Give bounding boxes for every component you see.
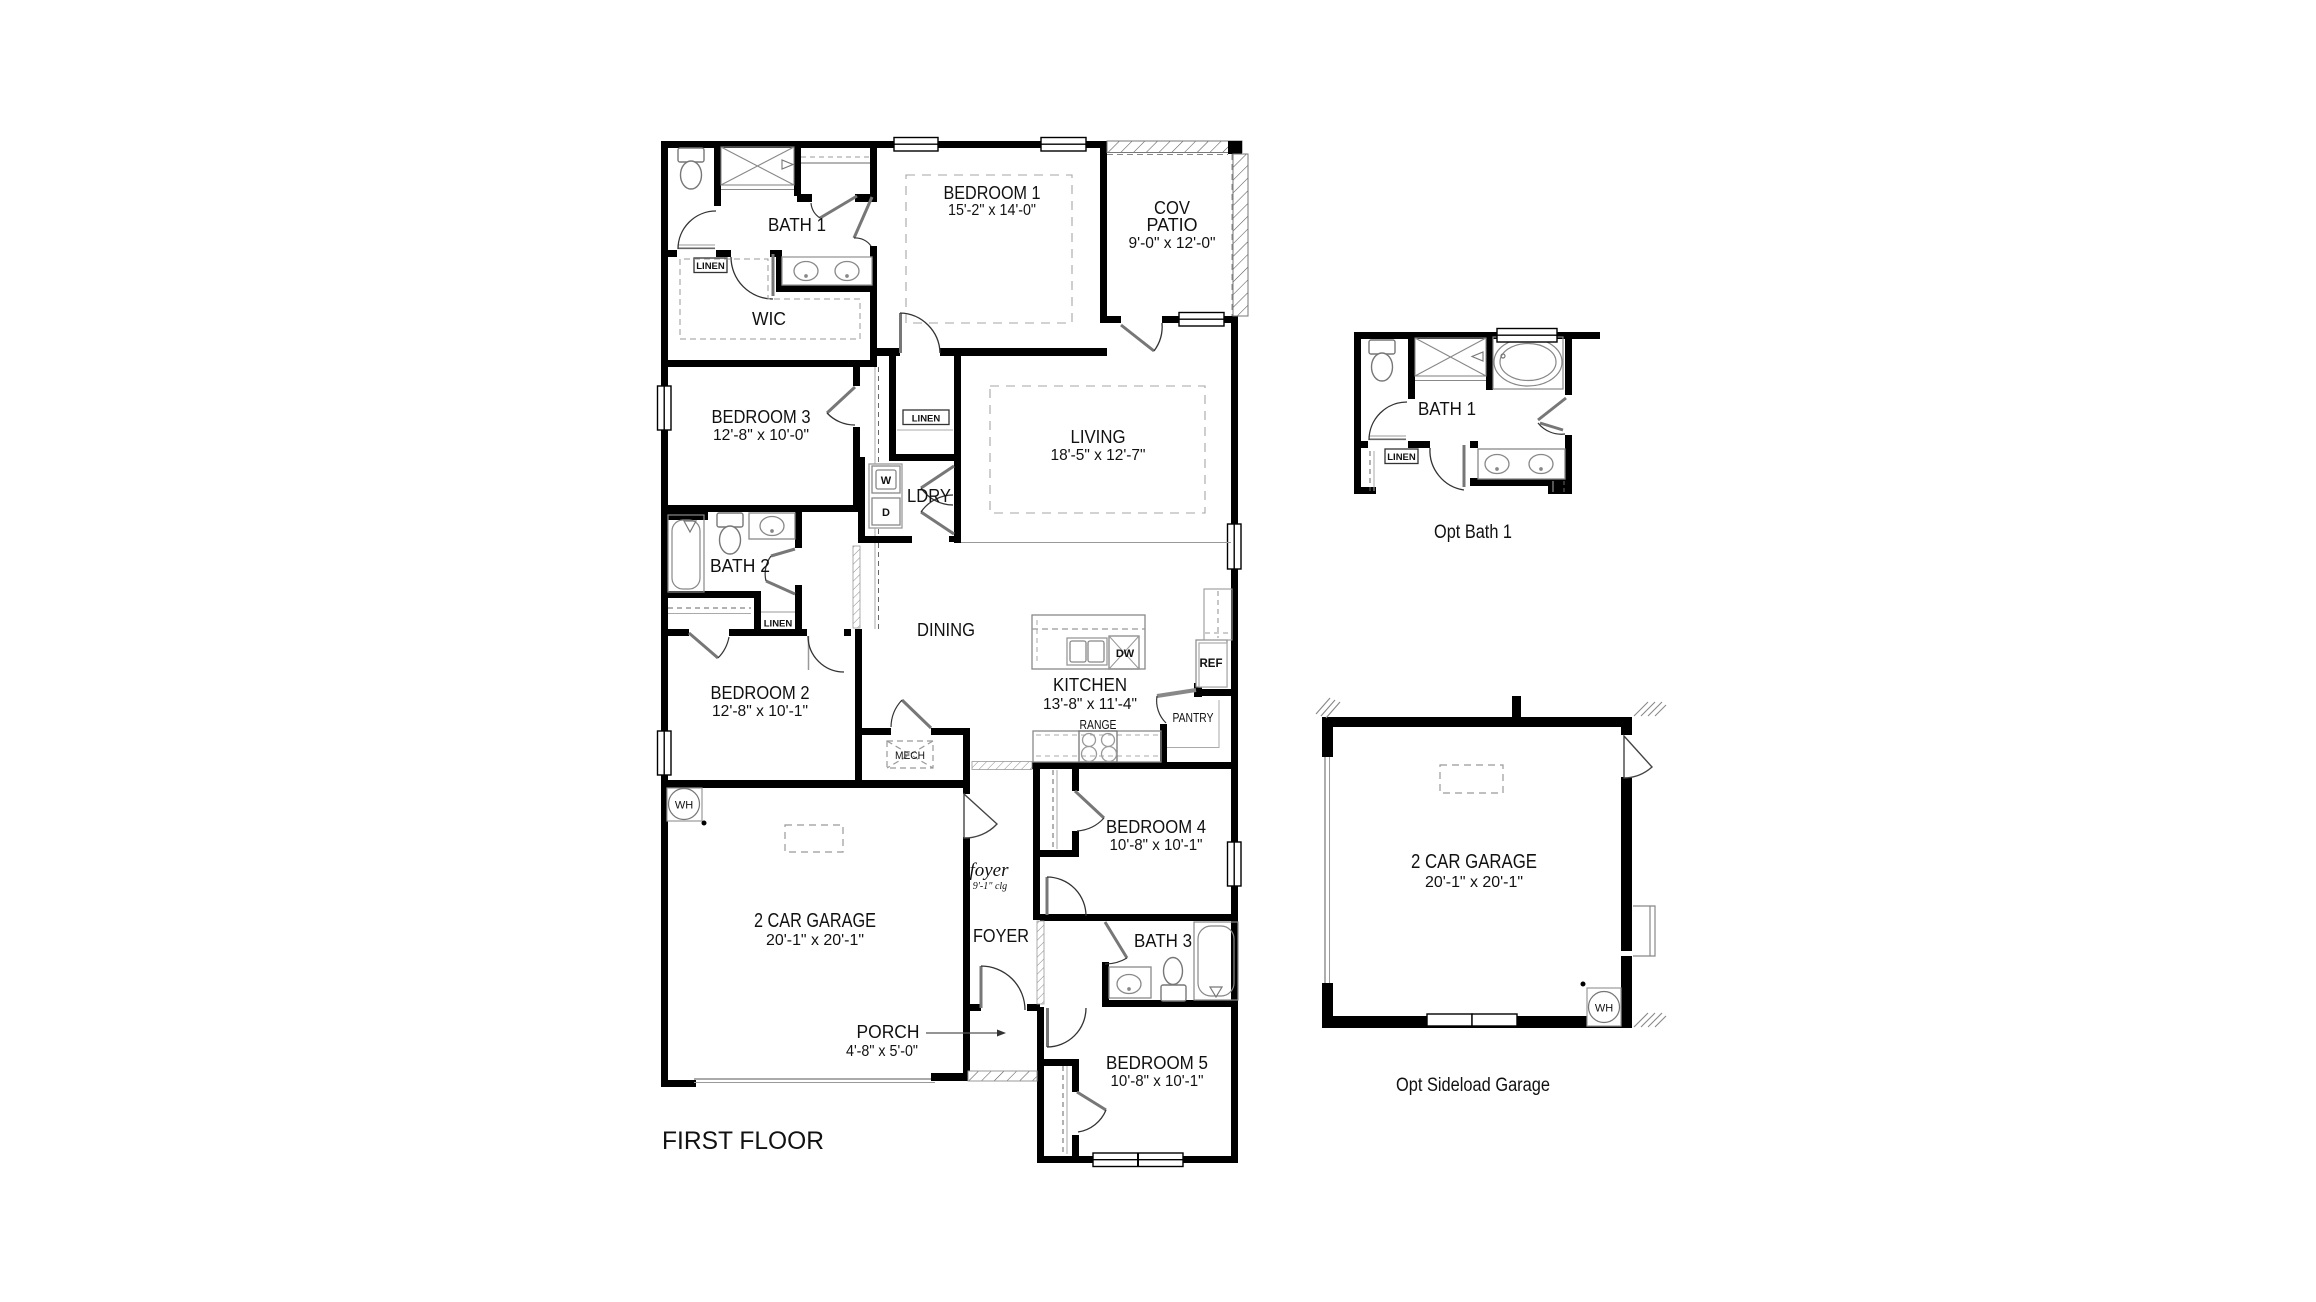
svg-text:BATH 2: BATH 2	[710, 555, 770, 576]
svg-text:10'-8" x 10'-1": 10'-8" x 10'-1"	[1111, 1073, 1204, 1090]
svg-text:FIRST FLOOR: FIRST FLOOR	[662, 1127, 824, 1155]
svg-text:9'-1" clg: 9'-1" clg	[973, 881, 1007, 892]
svg-text:LDRY: LDRY	[907, 485, 951, 506]
svg-text:LINEN: LINEN	[912, 414, 941, 425]
svg-text:RANGE: RANGE	[1080, 718, 1117, 732]
svg-text:BEDROOM 4: BEDROOM 4	[1106, 816, 1206, 837]
svg-text:2 CAR GARAGE: 2 CAR GARAGE	[754, 910, 876, 932]
svg-text:Opt Bath 1: Opt Bath 1	[1434, 522, 1512, 543]
svg-text:WH: WH	[1595, 1003, 1613, 1015]
svg-text:10'-8" x 10'-1": 10'-8" x 10'-1"	[1110, 837, 1203, 854]
svg-text:9'-0" x 12'-0": 9'-0" x 12'-0"	[1129, 235, 1216, 252]
svg-text:WIC: WIC	[752, 308, 786, 329]
svg-text:Opt Sideload Garage: Opt Sideload Garage	[1396, 1075, 1550, 1096]
svg-text:BATH 1: BATH 1	[1418, 398, 1476, 419]
svg-text:BEDROOM 1: BEDROOM 1	[944, 182, 1041, 203]
svg-text:BEDROOM 3: BEDROOM 3	[712, 406, 811, 427]
svg-text:LINEN: LINEN	[696, 261, 725, 272]
svg-text:PATIO: PATIO	[1147, 214, 1198, 235]
svg-text:BEDROOM 2: BEDROOM 2	[711, 682, 810, 703]
svg-text:12'-8" x 10'-1": 12'-8" x 10'-1"	[712, 703, 808, 720]
svg-text:MECH: MECH	[895, 750, 925, 762]
svg-text:DINING: DINING	[917, 619, 975, 640]
svg-text:PANTRY: PANTRY	[1173, 711, 1215, 725]
svg-text:PORCH: PORCH	[857, 1021, 920, 1042]
svg-text:4'-8" x 5'-0": 4'-8" x 5'-0"	[846, 1043, 918, 1060]
svg-text:W: W	[881, 475, 892, 487]
svg-text:foyer: foyer	[969, 860, 1009, 881]
svg-text:12'-8" x 10'-0": 12'-8" x 10'-0"	[713, 427, 809, 444]
svg-text:13'-8" x 11'-4": 13'-8" x 11'-4"	[1043, 696, 1137, 713]
svg-text:18'-5" x 12'-7": 18'-5" x 12'-7"	[1051, 447, 1146, 464]
svg-text:KITCHEN: KITCHEN	[1053, 674, 1127, 695]
svg-text:REF: REF	[1200, 658, 1223, 670]
svg-text:LINEN: LINEN	[764, 619, 793, 630]
svg-text:LINEN: LINEN	[1387, 452, 1416, 463]
svg-text:20'-1" x 20'-1": 20'-1" x 20'-1"	[1425, 874, 1523, 891]
svg-text:15'-2" x 14'-0": 15'-2" x 14'-0"	[948, 202, 1036, 219]
svg-text:20'-1" x 20'-1": 20'-1" x 20'-1"	[766, 932, 864, 949]
svg-text:LIVING: LIVING	[1071, 426, 1126, 447]
svg-text:BATH 1: BATH 1	[768, 214, 826, 235]
svg-text:D: D	[882, 507, 890, 519]
svg-text:2 CAR GARAGE: 2 CAR GARAGE	[1411, 851, 1537, 873]
svg-text:DW: DW	[1116, 648, 1135, 660]
svg-text:BATH 3: BATH 3	[1134, 930, 1192, 951]
svg-text:WH: WH	[675, 800, 693, 812]
svg-text:BEDROOM 5: BEDROOM 5	[1106, 1052, 1208, 1073]
svg-text:FOYER: FOYER	[973, 925, 1029, 946]
